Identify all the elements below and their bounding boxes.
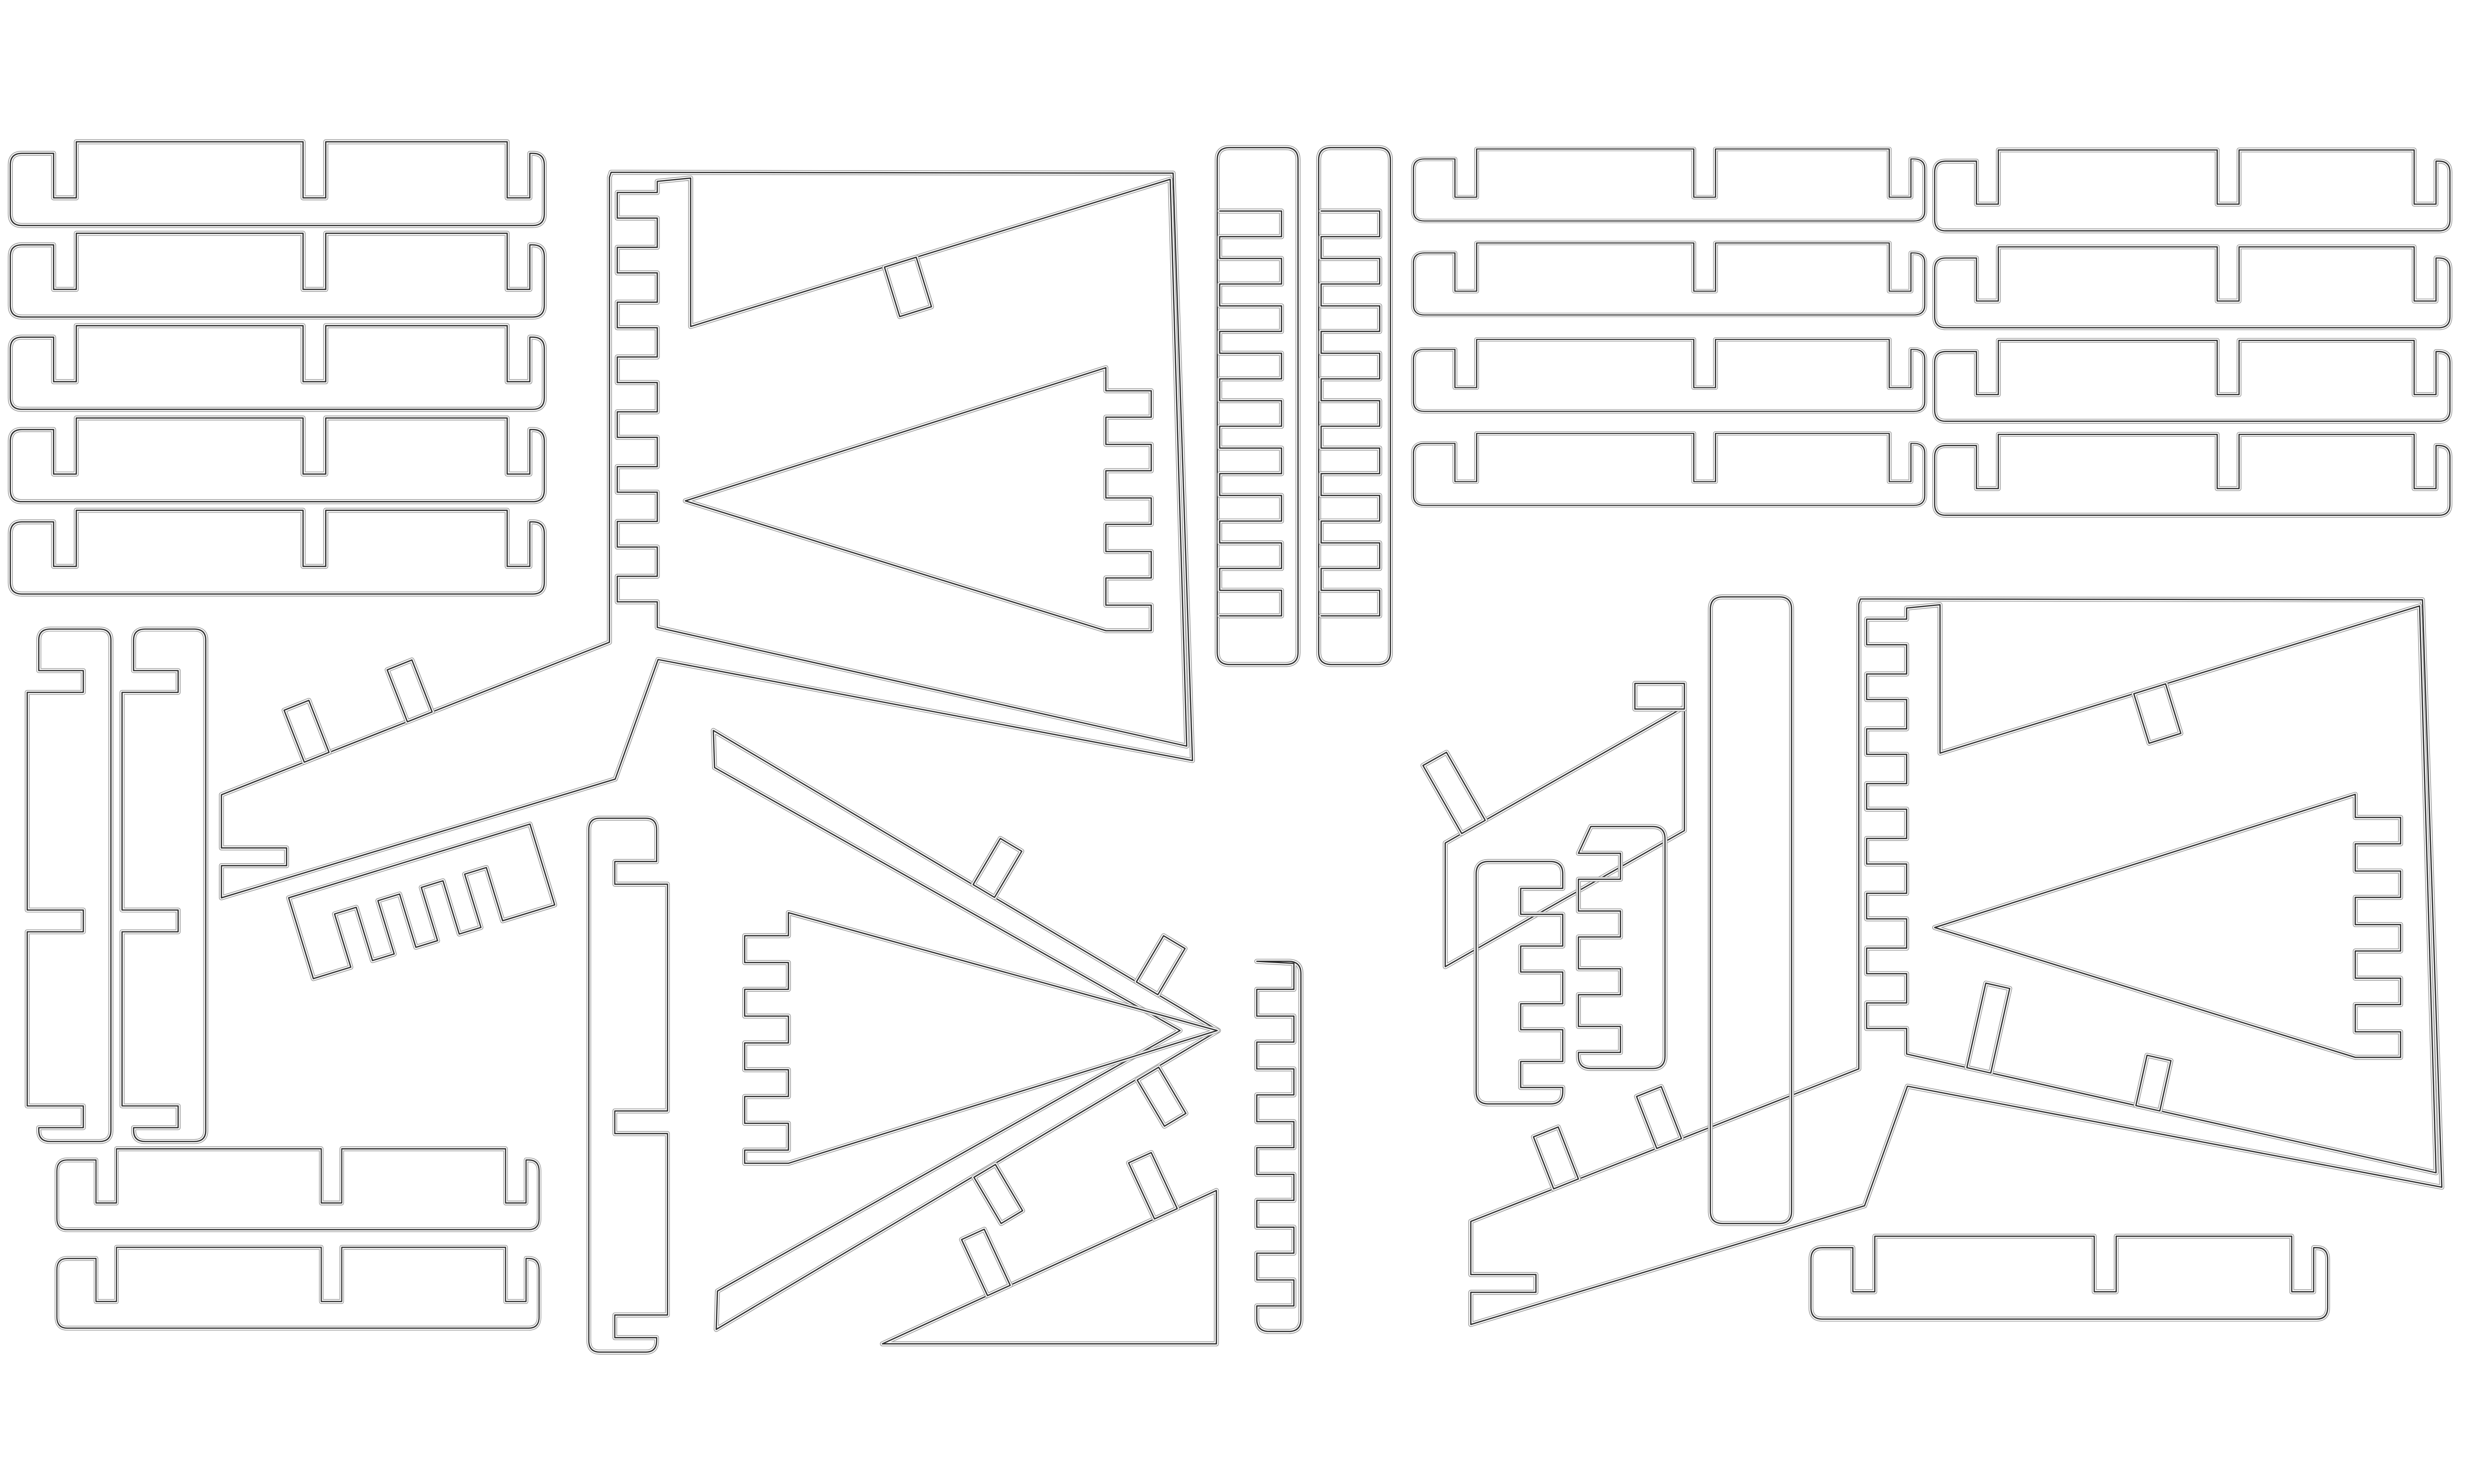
piece-right-cluster-hyp-tab [2134,684,2181,743]
piece-outline-vslat-1 [27,629,111,1142]
piece-outline-slat-bottomleft-2 [57,1248,539,1328]
piece-center-chevron-tab-4 [1137,1067,1186,1126]
piece-outline-vslat-3 [589,818,667,1352]
piece-plain-strip [1711,597,1792,1224]
piece-bottom-wedge-tab-1 [961,1229,1010,1296]
piece-outline-slat-colA-2 [1414,243,1925,315]
piece-outline-vslat-2 [122,629,206,1142]
piece-top-cluster-toothed-triangle [685,368,1151,631]
piece-outline-tapered-arm-slot [1635,684,1684,709]
piece-ruler-comb [288,824,555,978]
piece-outline-serpentine-strip-1-outline [1217,147,1298,664]
piece-outline-plain-strip [1711,597,1792,1224]
piece-outline-slat-colB-4 [1935,434,2450,515]
piece-slat-colB-1 [1935,150,2450,231]
piece-outline-slat-colA-3 [1414,339,1925,411]
piece-outline-serpentine-strip-2-wave [1321,211,1380,616]
piece-right-cluster-frame-outer [1471,599,2442,1325]
piece-center-chevron-tab-2 [1137,936,1185,995]
piece-outline-ruler-comb [288,824,555,978]
piece-outline-bottom-wedge-tab-2 [1129,1153,1177,1219]
piece-outline-slat-colA-2 [1414,243,1925,315]
piece-outline-top-cluster-frame-outer [222,172,1193,898]
piece-outline-top-cluster-toothed-triangle [685,368,1151,631]
piece-slat-colA-4 [1414,433,1925,505]
piece-bottom-comb-strip [1257,961,1301,1331]
piece-outline-slat-bottomright [1811,1236,2328,1319]
piece-outline-slat-colB-1 [1935,150,2450,231]
piece-outline-bottom-wedge-tab-1 [961,1229,1010,1296]
piece-outline-center-toothed-triangle [745,913,1217,1163]
piece-bottom-wedge-tab-2 [1129,1153,1177,1219]
piece-outline-tapered-arm-slot [1635,684,1684,709]
piece-outline-ruler-comb [288,824,555,978]
piece-outline-slat-colB-2 [1935,247,2450,327]
piece-slat-colB-4 [1935,434,2450,515]
piece-outline-slat-colA-4 [1414,433,1925,505]
piece-slat-left-4 [10,418,544,502]
piece-outline-center-toothed-triangle [745,913,1217,1163]
piece-outline-slat-left-3 [10,325,544,409]
piece-outline-slat-left-1 [10,142,544,226]
piece-outline-slat-colA-1 [1414,149,1925,221]
piece-right-cluster-tail-tab-a [1533,1127,1578,1189]
piece-outline-plain-strip [1711,597,1792,1224]
piece-top-cluster-tail-tab-b [387,660,432,722]
piece-outline-top-cluster-toothed-triangle [685,368,1151,631]
piece-outline-slat-bottomleft-2 [57,1248,539,1328]
piece-outline-right-arm-tab-1 [1967,983,2010,1073]
piece-outline-slat-colB-3 [1935,340,2450,421]
piece-outline-slat-colA-3 [1414,339,1925,411]
piece-top-cluster-tail-tab-a [284,700,329,762]
piece-outline-slat-colA-2 [1414,243,1925,315]
piece-outline-serpentine-strip-1-wave [1220,211,1282,616]
piece-outline-slat-left-3 [10,325,544,409]
piece-vslat-3 [589,818,667,1352]
piece-outline-slat-colB-4 [1935,434,2450,515]
piece-comb-block-right-slots [1476,862,1563,1104]
piece-outline-top-cluster-frame-outer [222,172,1193,898]
piece-center-toothed-triangle [745,913,1217,1163]
piece-outline-slat-left-1 [10,142,544,226]
piece-outline-bottom-wedge-tab-2 [1129,1153,1177,1219]
piece-outline-serpentine-strip-2-wave [1321,211,1380,616]
piece-slat-left-5 [10,510,544,594]
piece-outline-tapered-arm-tab [1423,752,1485,834]
piece-slat-bottomleft-2 [57,1248,539,1328]
piece-outline-vslat-2 [122,629,206,1142]
piece-slat-colB-3 [1935,340,2450,421]
cut-layout-canvas [0,0,2474,1484]
piece-outline-right-arm-tab-2 [2136,1055,2171,1111]
piece-outline-right-cluster-hyp-tab [2134,684,2181,743]
piece-outline-top-cluster-hyp-tab [885,257,932,317]
piece-tapered-arm-slot [1635,684,1684,709]
cut-pieces-group [10,142,2450,1352]
piece-outline-slat-bottomleft-2 [57,1248,539,1328]
piece-right-arm-tab-1 [1967,983,2010,1073]
piece-outline-ruler-comb [288,824,555,978]
piece-tapered-arm-tab [1423,752,1485,834]
piece-outline-slat-colA-4 [1414,433,1925,505]
piece-center-chevron-tab-3 [974,1164,1022,1223]
piece-serpentine-strip-1-wave [1220,211,1282,616]
piece-outline-slat-bottomright [1811,1236,2328,1319]
piece-outline-bottom-wedge-tab-1 [961,1229,1010,1296]
piece-outline-comb-block-right-slots [1476,862,1563,1104]
piece-outline-tapered-arm-slot [1635,684,1684,709]
piece-outline-slat-colB-1 [1935,150,2450,231]
piece-outline-slat-left-4 [10,418,544,502]
piece-slat-bottomright [1811,1236,2328,1319]
piece-outline-slat-bottomleft-1 [57,1149,539,1229]
piece-outline-slat-colB-3 [1935,340,2450,421]
piece-slat-left-3 [10,325,544,409]
piece-outline-slat-left-1 [10,142,544,226]
piece-outline-vslat-1 [27,629,111,1142]
piece-outline-bottom-wedge-tab-1 [961,1229,1010,1296]
piece-outline-vslat-1 [27,629,111,1142]
piece-top-cluster-hyp-tab [885,257,932,317]
piece-outline-slat-left-4 [10,418,544,502]
piece-outline-slat-colB-2 [1935,247,2450,327]
piece-outline-slat-colA-1 [1414,149,1925,221]
piece-slat-left-1 [10,142,544,226]
piece-outline-slat-left-5 [10,510,544,594]
piece-outline-slat-colB-3 [1935,340,2450,421]
piece-outline-slat-colB-1 [1935,150,2450,231]
piece-slat-colA-1 [1414,149,1925,221]
piece-outline-right-cluster-frame-outer [1471,599,2442,1325]
piece-outline-slat-left-5 [10,510,544,594]
piece-outline-slat-colB-4 [1935,434,2450,515]
piece-outline-top-cluster-frame-outer [222,172,1193,898]
piece-center-chevron-tab-1 [973,838,1022,897]
piece-right-cluster-tail-tab-b [1637,1087,1682,1149]
piece-comb-block-left-slots [1578,827,1665,1068]
piece-outline-vslat-3 [589,818,667,1352]
piece-outline-serpentine-strip-1-outline [1217,147,1298,664]
piece-slat-bottomleft-1 [57,1149,539,1229]
piece-outline-center-toothed-triangle [745,913,1217,1163]
piece-outline-vslat-2 [122,629,206,1142]
piece-outline-slat-colA-1 [1414,149,1925,221]
piece-outline-slat-colA-4 [1414,433,1925,505]
piece-serpentine-strip-1-outline [1217,147,1298,664]
piece-outline-slat-left-2 [10,233,544,317]
piece-top-cluster-frame-outer [222,172,1193,898]
piece-outline-bottom-wedge-tab-2 [1129,1153,1177,1219]
piece-outline-slat-bottomleft-1 [57,1149,539,1229]
piece-slat-colA-2 [1414,243,1925,315]
piece-outline-serpentine-strip-1-wave [1220,211,1282,616]
piece-outline-right-cluster-frame-outer [1471,599,2442,1325]
piece-vslat-1 [27,629,111,1142]
piece-slat-left-2 [10,233,544,317]
piece-outline-slat-left-2 [10,233,544,317]
piece-right-arm-tab-2 [2136,1055,2171,1111]
piece-outline-top-cluster-toothed-triangle [685,368,1151,631]
piece-outline-slat-colB-2 [1935,247,2450,327]
piece-outline-plain-strip [1711,597,1792,1224]
piece-outline-comb-block-left-slots [1578,827,1665,1068]
piece-outline-slat-bottomright [1811,1236,2328,1319]
piece-outline-serpentine-strip-1-outline [1217,147,1298,664]
piece-outline-slat-left-5 [10,510,544,594]
piece-slat-colB-2 [1935,247,2450,327]
laser-cut-nesting-sheet [0,0,2474,1484]
piece-outline-slat-colA-3 [1414,339,1925,411]
piece-serpentine-strip-2-wave [1321,211,1380,616]
piece-outline-right-cluster-frame-outer [1471,599,2442,1325]
piece-outline-slat-left-3 [10,325,544,409]
piece-outline-serpentine-strip-2-wave [1321,211,1380,616]
piece-outline-slat-bottomleft-1 [57,1149,539,1229]
piece-outline-vslat-3 [589,818,667,1352]
piece-slat-colA-3 [1414,339,1925,411]
piece-outline-slat-left-4 [10,418,544,502]
piece-vslat-2 [122,629,206,1142]
piece-outline-serpentine-strip-1-wave [1220,211,1282,616]
piece-outline-slat-left-2 [10,233,544,317]
